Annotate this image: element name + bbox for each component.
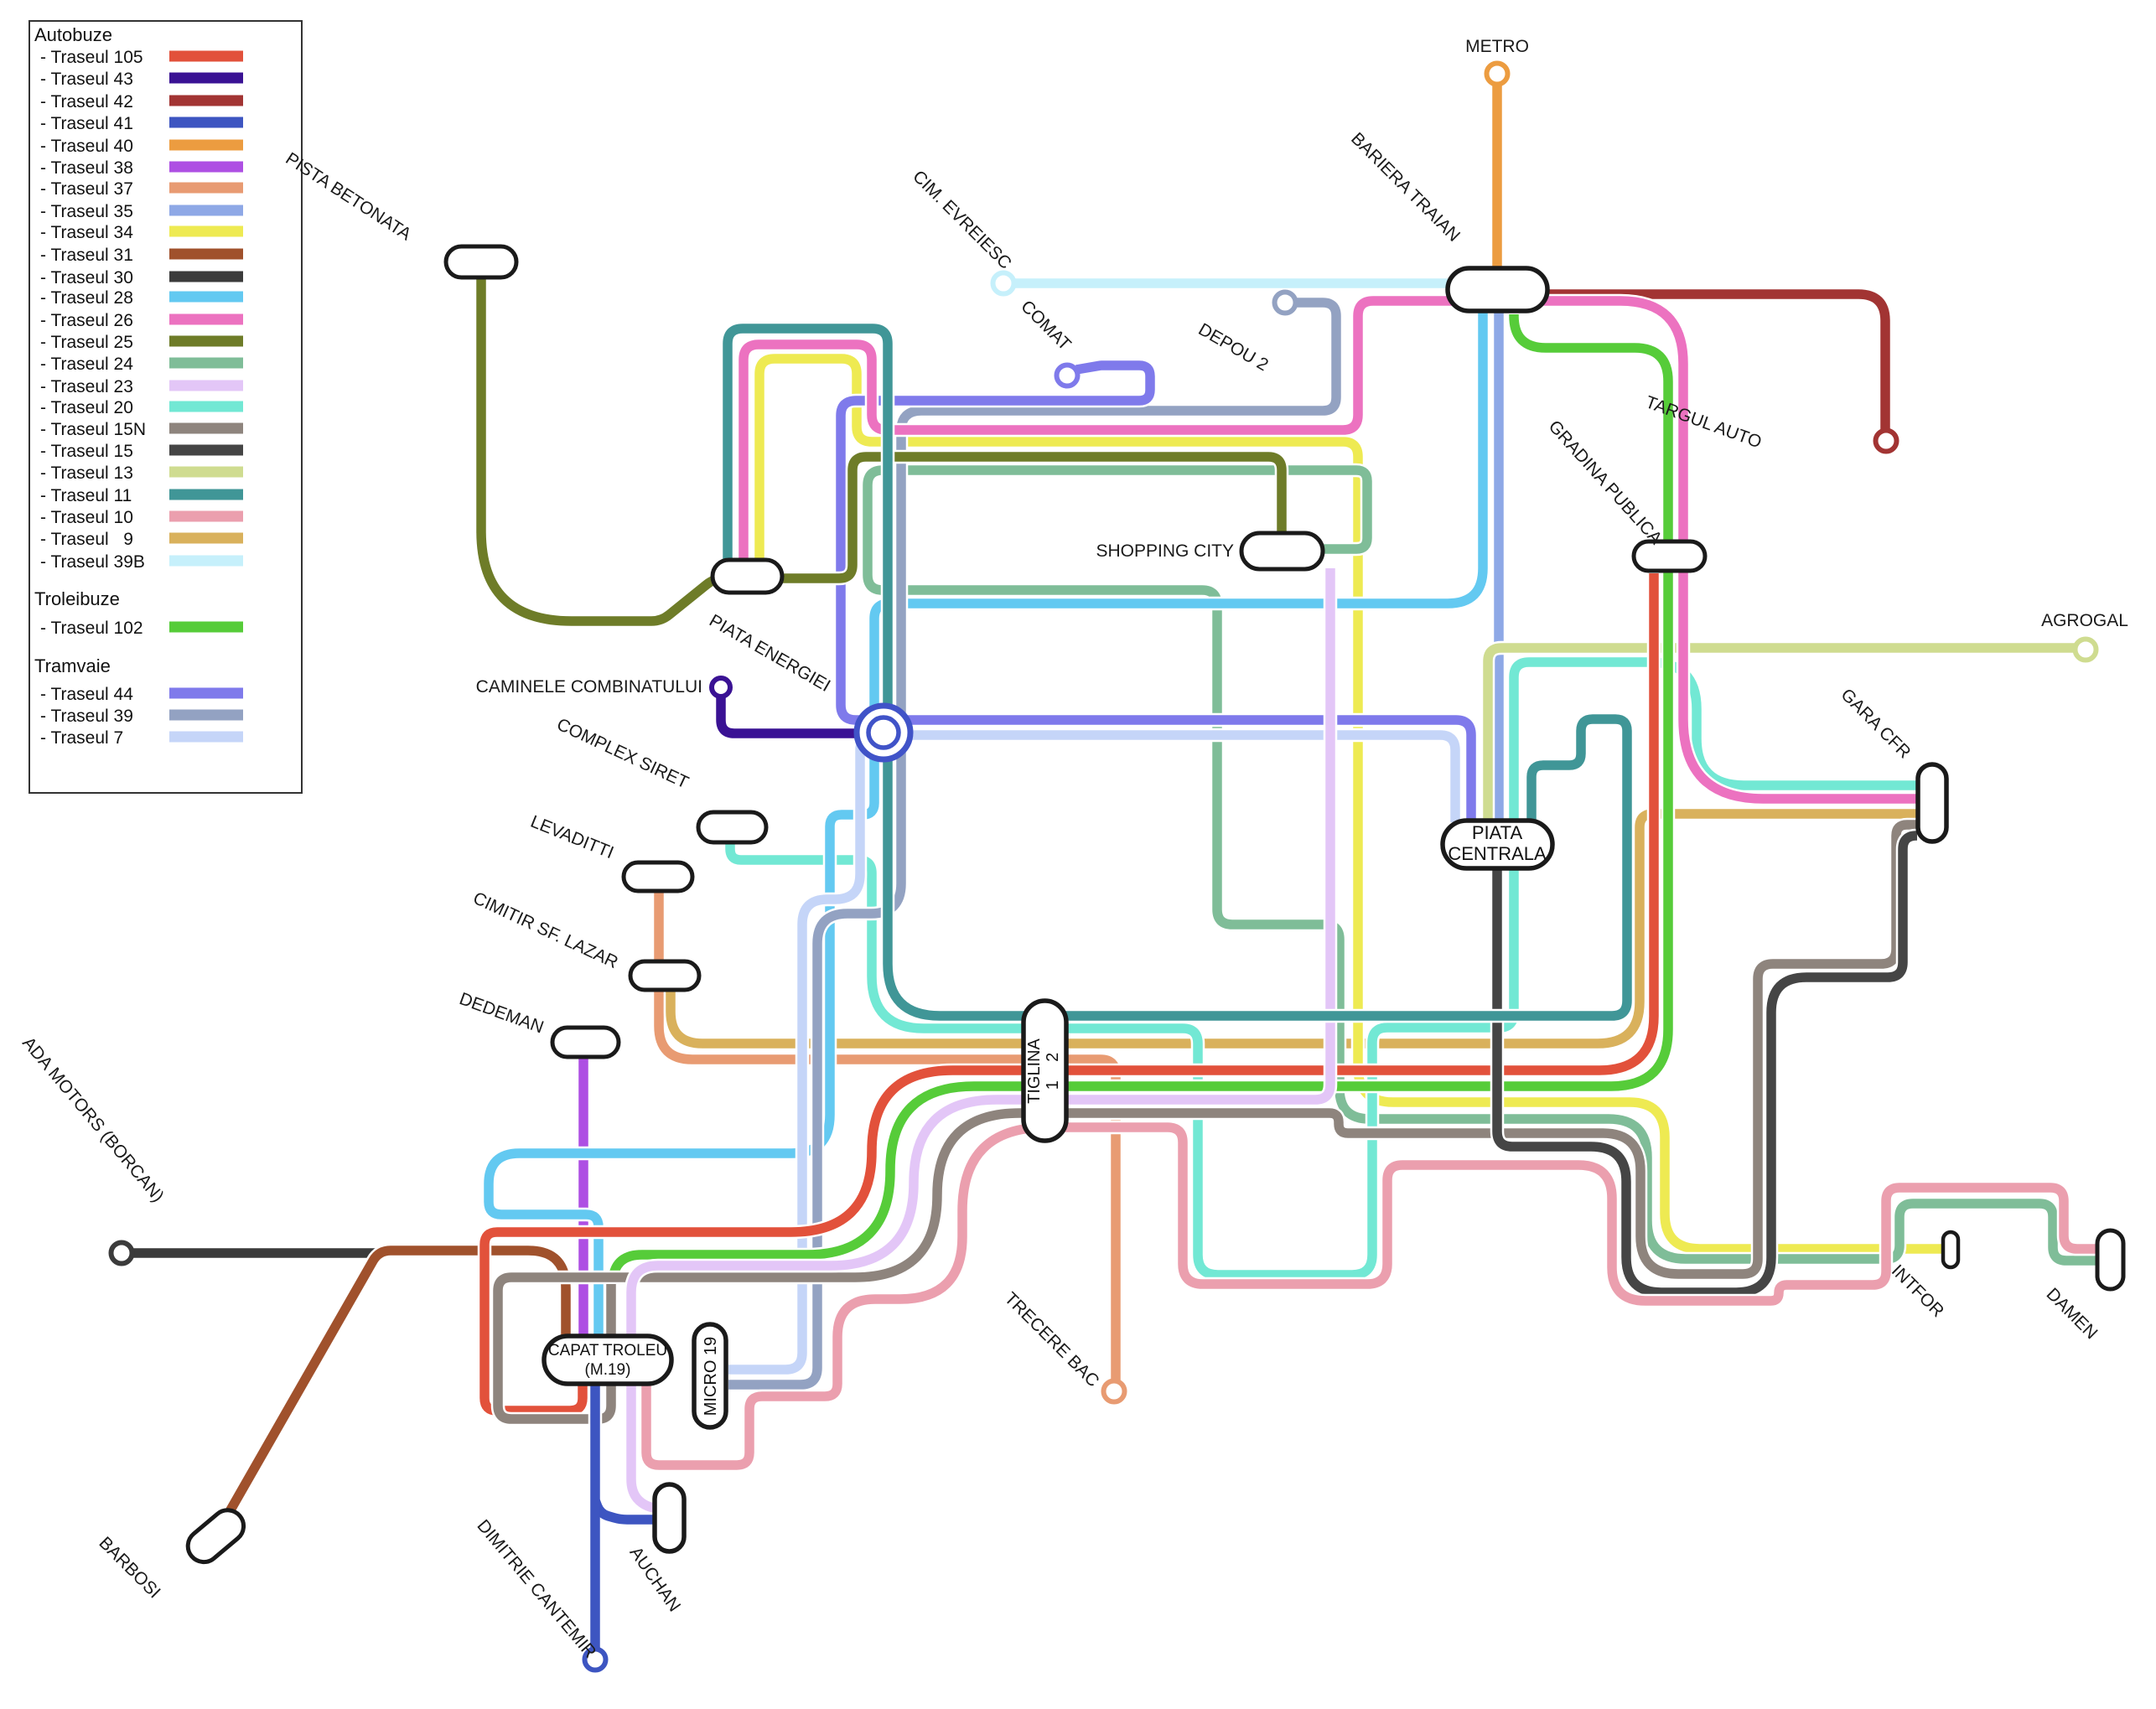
svg-text:MICRO 19: MICRO 19 [702, 1337, 720, 1416]
svg-text:- Traseul 42: - Traseul 42 [40, 92, 133, 111]
svg-text:- Traseul 37: - Traseul 37 [40, 179, 133, 199]
svg-text:- Traseul 31: - Traseul 31 [40, 246, 133, 265]
svg-text:- Traseul 25: - Traseul 25 [40, 333, 133, 352]
svg-text:METRO: METRO [1465, 37, 1529, 56]
svg-text:(M.19): (M.19) [585, 1361, 631, 1379]
svg-text:CAMINELE COMBINATULUI: CAMINELE COMBINATULUI [476, 677, 702, 697]
svg-text:- Traseul 39: - Traseul 39 [40, 707, 133, 726]
svg-text:- Traseul 40: - Traseul 40 [40, 137, 133, 156]
svg-text:- Traseul 26: - Traseul 26 [40, 311, 133, 330]
svg-text:AGROGAL: AGROGAL [2041, 611, 2128, 630]
svg-text:- Traseul 39B: - Traseul 39B [40, 552, 145, 572]
svg-text:- Traseul 38: - Traseul 38 [40, 158, 133, 178]
svg-text:- Traseul 23: - Traseul 23 [40, 377, 133, 396]
svg-text:- Traseul 30: - Traseul 30 [40, 268, 133, 287]
svg-text:- Traseul 10: - Traseul 10 [40, 508, 133, 527]
svg-text:- Traseul 35: - Traseul 35 [40, 202, 133, 221]
svg-text:- Traseul 11: - Traseul 11 [40, 486, 132, 505]
svg-text:- Traseul 44: - Traseul 44 [40, 685, 133, 704]
svg-text:Troleibuze: Troleibuze [34, 588, 120, 609]
svg-text:CAPAT TROLEU: CAPAT TROLEU [548, 1342, 667, 1359]
svg-text:- Traseul 102: - Traseul 102 [40, 619, 143, 638]
svg-text:TIGLINA: TIGLINA [1025, 1038, 1044, 1103]
svg-text:- Traseul 24: - Traseul 24 [40, 355, 133, 374]
svg-text:- Traseul 105: - Traseul 105 [40, 48, 143, 67]
svg-text:- Traseul 43: - Traseul 43 [40, 70, 133, 89]
svg-text:- Traseul 7: - Traseul 7 [40, 728, 123, 748]
svg-text:- Traseul 9: - Traseul 9 [40, 530, 133, 549]
svg-text:Tramvaie: Tramvaie [34, 655, 111, 676]
svg-text:Autobuze: Autobuze [34, 24, 112, 45]
svg-text:- Traseul 13: - Traseul 13 [40, 464, 133, 483]
svg-text:- Traseul 15: - Traseul 15 [40, 442, 133, 461]
svg-text:- Traseul 20: - Traseul 20 [40, 398, 133, 417]
svg-text:- Traseul 34: - Traseul 34 [40, 223, 133, 242]
svg-text:SHOPPING CITY: SHOPPING CITY [1096, 541, 1234, 561]
svg-text:- Traseul 28: - Traseul 28 [40, 288, 133, 308]
svg-text:PIATA: PIATA [1472, 822, 1523, 843]
svg-text:- Traseul 15N: - Traseul 15N [40, 420, 146, 439]
svg-text:- Traseul 41: - Traseul 41 [40, 114, 133, 133]
svg-text:CENTRALA: CENTRALA [1448, 843, 1547, 864]
svg-text:1 2: 1 2 [1044, 1053, 1062, 1090]
